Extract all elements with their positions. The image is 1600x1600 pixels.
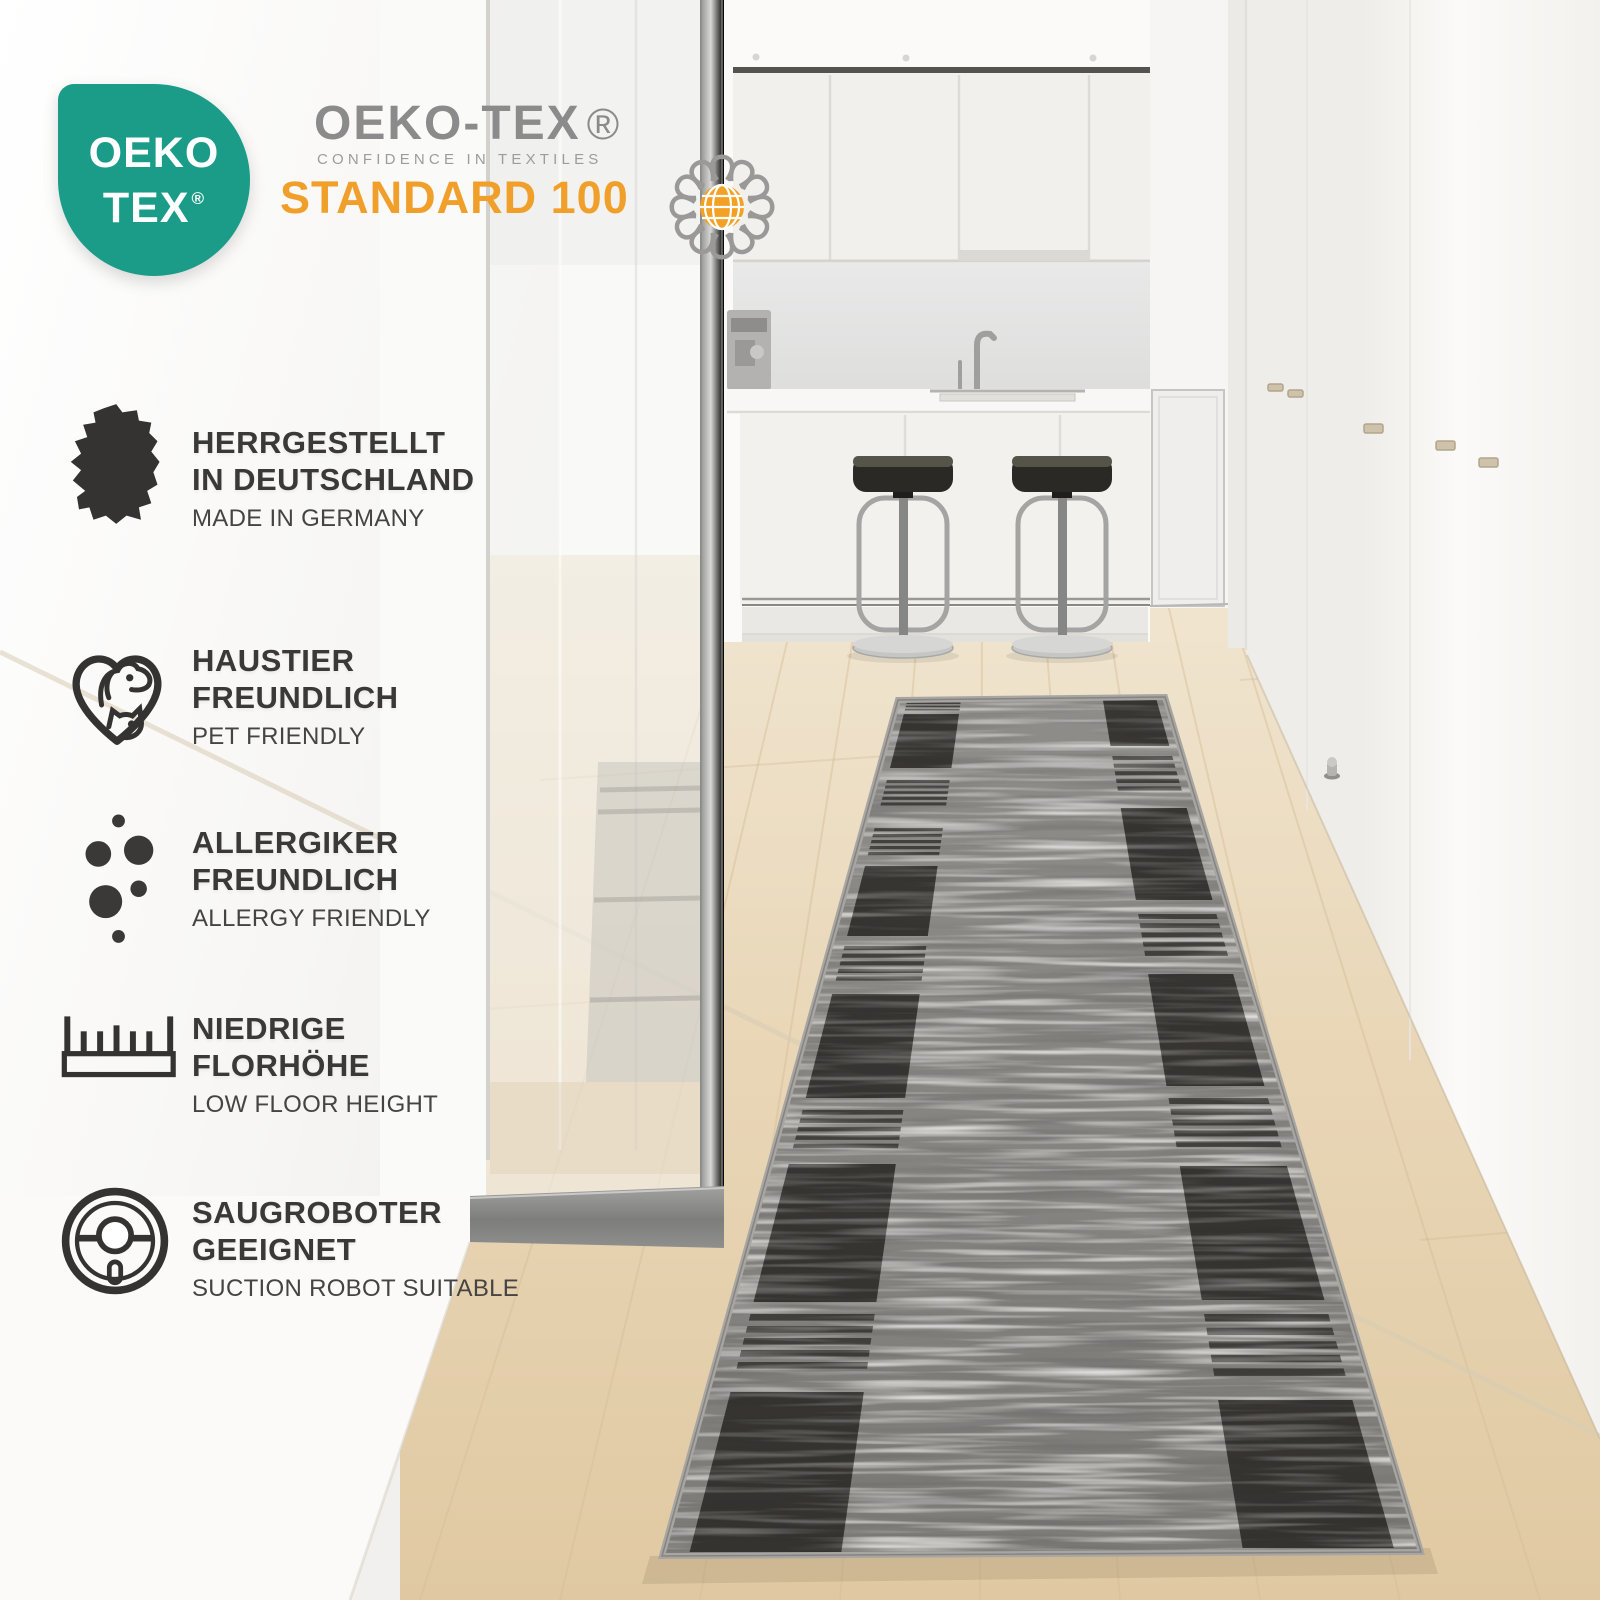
robot-vacuum-icon xyxy=(58,1184,178,1310)
germany-map-icon xyxy=(58,402,178,528)
ceiling-shadow-line xyxy=(733,67,1215,73)
feature-subtitle: MADE IN GERMANY xyxy=(192,505,612,533)
feature-title-line1: HAUSTIER xyxy=(192,643,354,678)
feature-pet-friendly: HAUSTIERFREUNDLICH PET FRIENDLY xyxy=(192,642,612,751)
feature-title-line1: NIEDRIGE xyxy=(192,1011,346,1046)
standard-100-label: STANDARD 100 xyxy=(280,172,629,224)
counter xyxy=(727,389,1150,413)
brand-text: OEKO-TEX xyxy=(314,97,581,150)
kitchen-hallway-photo xyxy=(0,0,1600,1600)
feature-allergy-friendly: ALLERGIKERFREUNDLICH ALLERGY FRIENDLY xyxy=(192,824,612,933)
feature-subtitle: SUCTION ROBOT SUITABLE xyxy=(192,1275,612,1303)
kitchen-alcove xyxy=(700,0,1215,642)
backsplash xyxy=(733,263,1150,389)
feature-title-line1: SAUGROBOTER xyxy=(192,1195,442,1230)
feature-subtitle: PET FRIENDLY xyxy=(192,723,612,751)
feature-low-pile: NIEDRIGEFLORHÖHE LOW FLOOR HEIGHT xyxy=(192,1010,612,1119)
oeko-tex-badge: OEKO TEX® xyxy=(58,84,250,276)
feature-title-line2: FREUNDLICH xyxy=(192,862,399,897)
feature-title-line2: GEEIGNET xyxy=(192,1232,356,1267)
badge-line2: TEX xyxy=(103,184,190,232)
badge-line1: OEKO xyxy=(89,130,220,176)
feature-title-line1: HERRGESTELLT xyxy=(192,425,445,460)
coffee-machine xyxy=(727,310,771,390)
globe-icon xyxy=(700,185,744,229)
feature-title-line2: FREUNDLICH xyxy=(192,680,399,715)
allergy-dots-icon xyxy=(58,806,178,932)
pet-heart-icon xyxy=(58,636,178,762)
brand-registered-mark: ® xyxy=(587,100,621,149)
corridor-end-door xyxy=(1150,0,1228,608)
registered-mark: ® xyxy=(192,189,206,208)
feature-made-in-germany: HERRGESTELLTIN DEUTSCHLAND MADE IN GERMA… xyxy=(192,424,612,533)
feature-title-line2: IN DEUTSCHLAND xyxy=(192,462,475,497)
oeko-tex-logo-title: OEKO-TEX® xyxy=(314,96,621,151)
upper-cabinets xyxy=(733,73,1150,262)
feature-title-line2: FLORHÖHE xyxy=(192,1048,370,1083)
logo-tagline: CONFIDENCE IN TEXTILES xyxy=(317,151,603,168)
feature-robot-vacuum: SAUGROBOTERGEEIGNET SUCTION ROBOT SUITAB… xyxy=(192,1194,612,1303)
feature-subtitle: ALLERGY FRIENDLY xyxy=(192,905,612,933)
badge-line2-wrap: TEX® xyxy=(103,176,205,231)
pile-height-icon xyxy=(58,1000,178,1126)
oeko-tex-loop-ornament-icon xyxy=(663,148,781,266)
feature-title-line1: ALLERGIKER xyxy=(192,825,399,860)
feature-subtitle: LOW FLOOR HEIGHT xyxy=(192,1091,612,1119)
